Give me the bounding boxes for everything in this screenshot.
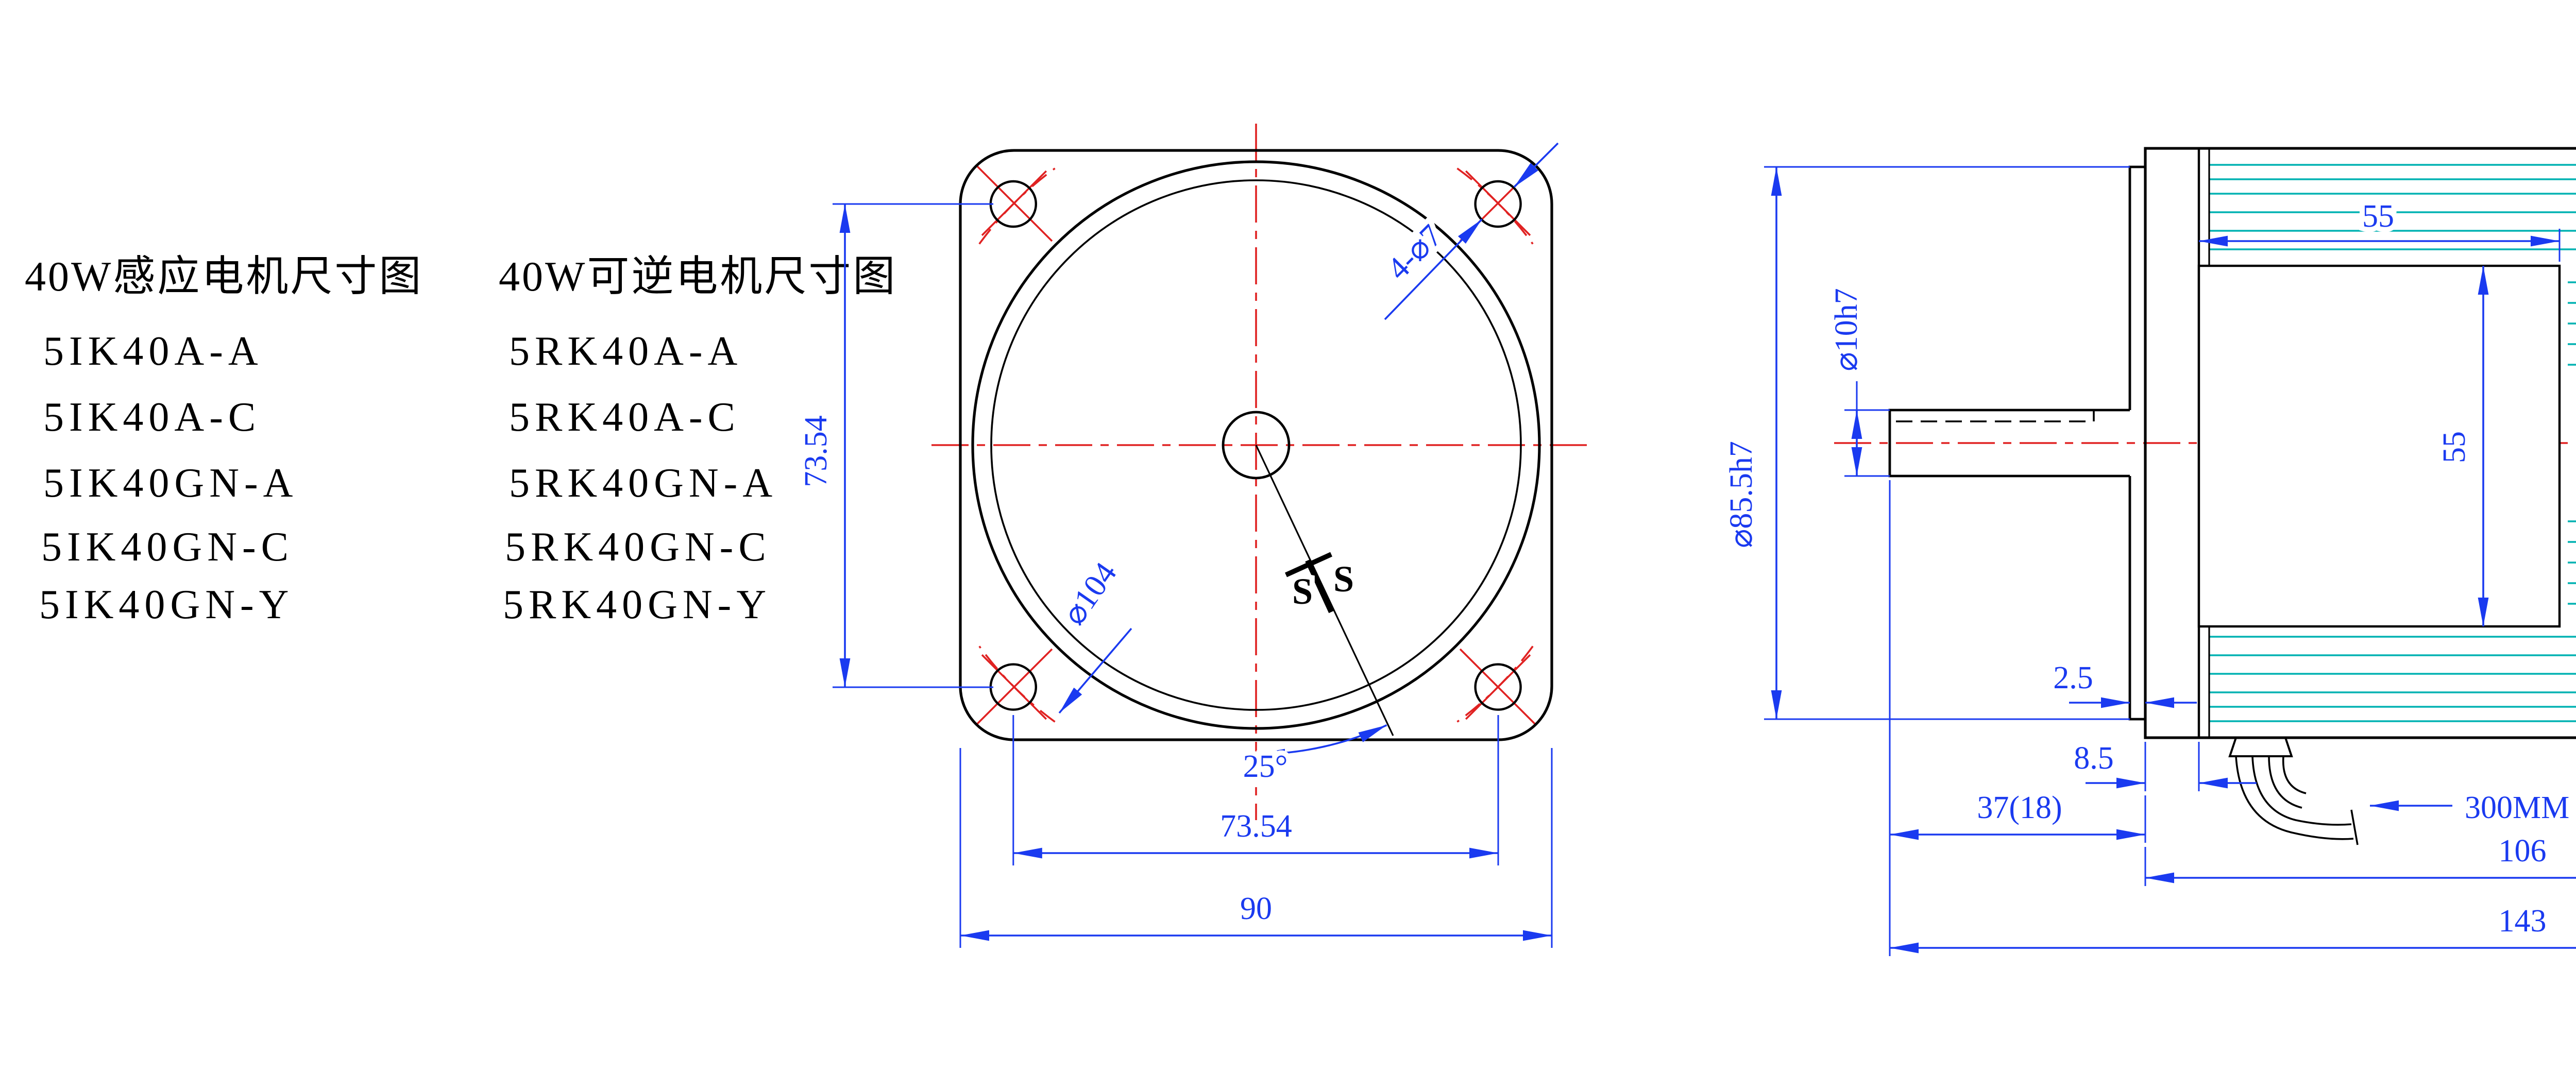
dim-label-90: 90 — [1240, 891, 1272, 926]
dim-label-d855h7: ⌀85.5h7 — [1724, 441, 1759, 548]
dim-body-length: 106 — [2145, 822, 2576, 886]
title-reversible-motor: 40W可逆电机尺寸图 — [499, 253, 897, 300]
model-item: 5IK40GN-Y — [39, 582, 294, 627]
model-item: 5IK40GN-C — [41, 524, 294, 570]
centerline-cross — [931, 124, 1587, 820]
leader-line — [1059, 628, 1131, 713]
model-item: 5RK40GN-C — [505, 524, 771, 570]
cable-bundle — [2230, 738, 2358, 845]
extension-lines — [1890, 480, 2145, 956]
title-induction-motor: 40W感应电机尺寸图 — [25, 253, 423, 300]
section-line — [1256, 445, 1393, 736]
centerlines — [931, 124, 1587, 820]
dim-label-25: 2.5 — [2053, 660, 2093, 695]
model-list-left: 40W感应电机尺寸图 5IK40A-A 5IK40A-C 5IK40GN-A 5… — [25, 253, 423, 627]
dim-label-angle: 25° — [1243, 749, 1288, 784]
model-item: 5RK40GN-Y — [503, 582, 771, 627]
section-mark: S S — [1286, 554, 1354, 612]
dim-holes: 4-⌀7 — [1380, 143, 1558, 319]
dim-total-length: 143 — [1890, 890, 2576, 956]
dim-label-55-vert: 55 — [2437, 431, 2472, 463]
model-list-right: 40W可逆电机尺寸图 5RK40A-A 5RK40A-C 5RK40GN-A 5… — [499, 253, 897, 627]
model-item: 5IK40GN-A — [43, 461, 298, 506]
model-item: 5IK40A-C — [43, 395, 261, 440]
drawing-sheet: 40W感应电机尺寸图 5IK40A-A 5IK40A-C 5IK40GN-A 5… — [0, 0, 2576, 1088]
dim-label-d104: ⌀104 — [1056, 556, 1123, 632]
model-item: 5RK40A-A — [509, 329, 742, 374]
dim-bolt-circle: ⌀104 — [1056, 556, 1131, 713]
dim-label-300mm: 300MM — [2465, 790, 2569, 825]
dim-spigot-depth: 2.5 — [2053, 660, 2197, 703]
leader-line — [1514, 143, 1558, 187]
dim-label-7354-h: 73.54 — [1220, 809, 1292, 844]
front-view: S S 4-⌀7 ⌀104 25° 73.54 73.5 — [799, 124, 1587, 948]
stator-window — [2199, 266, 2560, 626]
cable-gland — [2230, 738, 2292, 756]
fins-right — [2568, 282, 2576, 604]
model-item: 5IK40A-A — [43, 329, 263, 374]
motor-body — [2145, 148, 2576, 738]
extension-lines — [2145, 742, 2199, 791]
dim-cable-length: 300MM — [2370, 790, 2569, 825]
model-item: 5RK40GN-A — [509, 461, 777, 506]
cad-canvas: 40W感应电机尺寸图 5IK40A-A 5IK40A-C 5IK40GN-A 5… — [0, 0, 2576, 1088]
section-letter-right: S — [1333, 558, 1354, 600]
cable-wires — [2236, 756, 2358, 845]
fins-bottom — [2209, 637, 2576, 721]
dim-shaft-length: 37(18) — [1890, 480, 2145, 956]
dim-shaft-dia: ⌀10h7 — [1829, 288, 1890, 476]
dim-boss-depth: 8.5 — [2074, 741, 2257, 791]
dim-label-55-top: 55 — [2362, 199, 2394, 234]
dim-label-85: 8.5 — [2074, 741, 2114, 776]
side-view: 55 55 ⌀85.5h7 ⌀10h7 ⌀85.4 — [1724, 148, 2576, 956]
dim-angle-25: 25° — [1243, 725, 1387, 784]
dim-label-106: 106 — [2499, 834, 2547, 869]
dim-label-7354-v: 73.54 — [799, 415, 834, 487]
section-letter-left: S — [1292, 571, 1313, 612]
dim-label-d10h7: ⌀10h7 — [1829, 288, 1864, 371]
dim-label-3718: 37(18) — [1977, 790, 2062, 825]
dim-label-143: 143 — [2499, 904, 2547, 939]
model-item: 5RK40A-C — [509, 395, 740, 440]
